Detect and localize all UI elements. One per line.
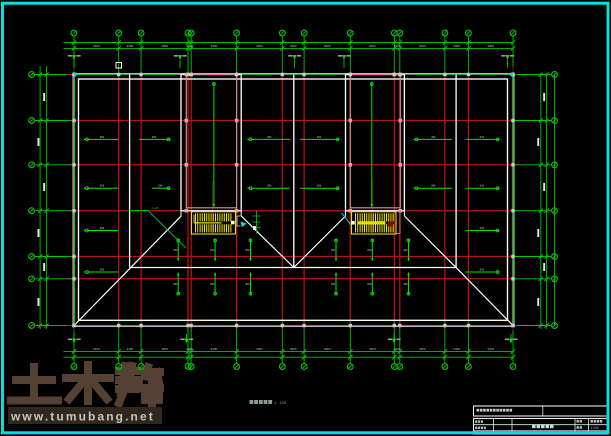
svg-text:3300: 3300	[324, 44, 331, 48]
svg-text:1 : 100: 1 : 100	[274, 400, 287, 405]
svg-text:3300: 3300	[290, 347, 297, 351]
svg-text:2%: 2%	[331, 282, 336, 286]
svg-text:2%: 2%	[404, 282, 409, 286]
svg-text:3300: 3300	[161, 347, 168, 351]
svg-text:3300: 3300	[290, 44, 297, 48]
svg-text:2%: 2%	[158, 184, 163, 188]
svg-text:1:100: 1:100	[591, 426, 599, 430]
svg-text:3300: 3300	[453, 347, 460, 351]
svg-text:2%: 2%	[100, 268, 105, 272]
svg-text:3300: 3300	[186, 44, 193, 48]
svg-text:3300: 3300	[394, 44, 401, 48]
svg-text:3300: 3300	[93, 44, 100, 48]
svg-text:2%: 2%	[152, 135, 157, 139]
svg-text:2%: 2%	[480, 184, 485, 188]
svg-text:2%: 2%	[100, 135, 105, 139]
svg-text:3300: 3300	[161, 44, 168, 48]
svg-text:2%: 2%	[431, 184, 436, 188]
svg-text:2%: 2%	[100, 184, 105, 188]
svg-text:3300: 3300	[419, 44, 426, 48]
svg-text:2%: 2%	[210, 282, 215, 286]
svg-text:3300: 3300	[127, 347, 134, 351]
svg-text:2%: 2%	[317, 184, 322, 188]
svg-text:3300: 3300	[256, 44, 263, 48]
svg-text:3300: 3300	[369, 44, 376, 48]
svg-text:2%: 2%	[267, 135, 272, 139]
svg-text:3300: 3300	[419, 347, 426, 351]
svg-text:3300: 3300	[256, 347, 263, 351]
svg-text:3300: 3300	[127, 44, 134, 48]
svg-text:2%: 2%	[331, 248, 336, 252]
svg-text:3300: 3300	[487, 44, 494, 48]
svg-text:3300: 3300	[487, 347, 494, 351]
svg-text:2%: 2%	[173, 282, 178, 286]
svg-text:3300: 3300	[394, 347, 401, 351]
svg-text:2%: 2%	[404, 248, 409, 252]
svg-text:2%: 2%	[100, 226, 105, 230]
svg-text:2%: 2%	[210, 248, 215, 252]
svg-text:2%: 2%	[246, 282, 251, 286]
svg-text:2%: 2%	[246, 248, 251, 252]
svg-text:2%: 2%	[317, 135, 322, 139]
svg-text:2%: 2%	[431, 135, 436, 139]
svg-text:2%: 2%	[480, 268, 485, 272]
svg-text:3300: 3300	[453, 44, 460, 48]
svg-text:2%: 2%	[480, 226, 485, 230]
svg-text:2%: 2%	[267, 184, 272, 188]
svg-text:www.tumubang.net: www.tumubang.net	[10, 409, 155, 423]
svg-text:3300: 3300	[369, 347, 376, 351]
svg-text:4.1R: 4.1R	[152, 206, 159, 210]
svg-text:2%: 2%	[367, 282, 372, 286]
svg-text:3300: 3300	[211, 44, 218, 48]
svg-text:2%: 2%	[367, 248, 372, 252]
svg-text:3300: 3300	[324, 347, 331, 351]
svg-text:3300: 3300	[211, 347, 218, 351]
svg-text:3300: 3300	[93, 347, 100, 351]
svg-text:2%: 2%	[173, 248, 178, 252]
svg-text:3300: 3300	[186, 347, 193, 351]
svg-text:2%: 2%	[480, 135, 485, 139]
